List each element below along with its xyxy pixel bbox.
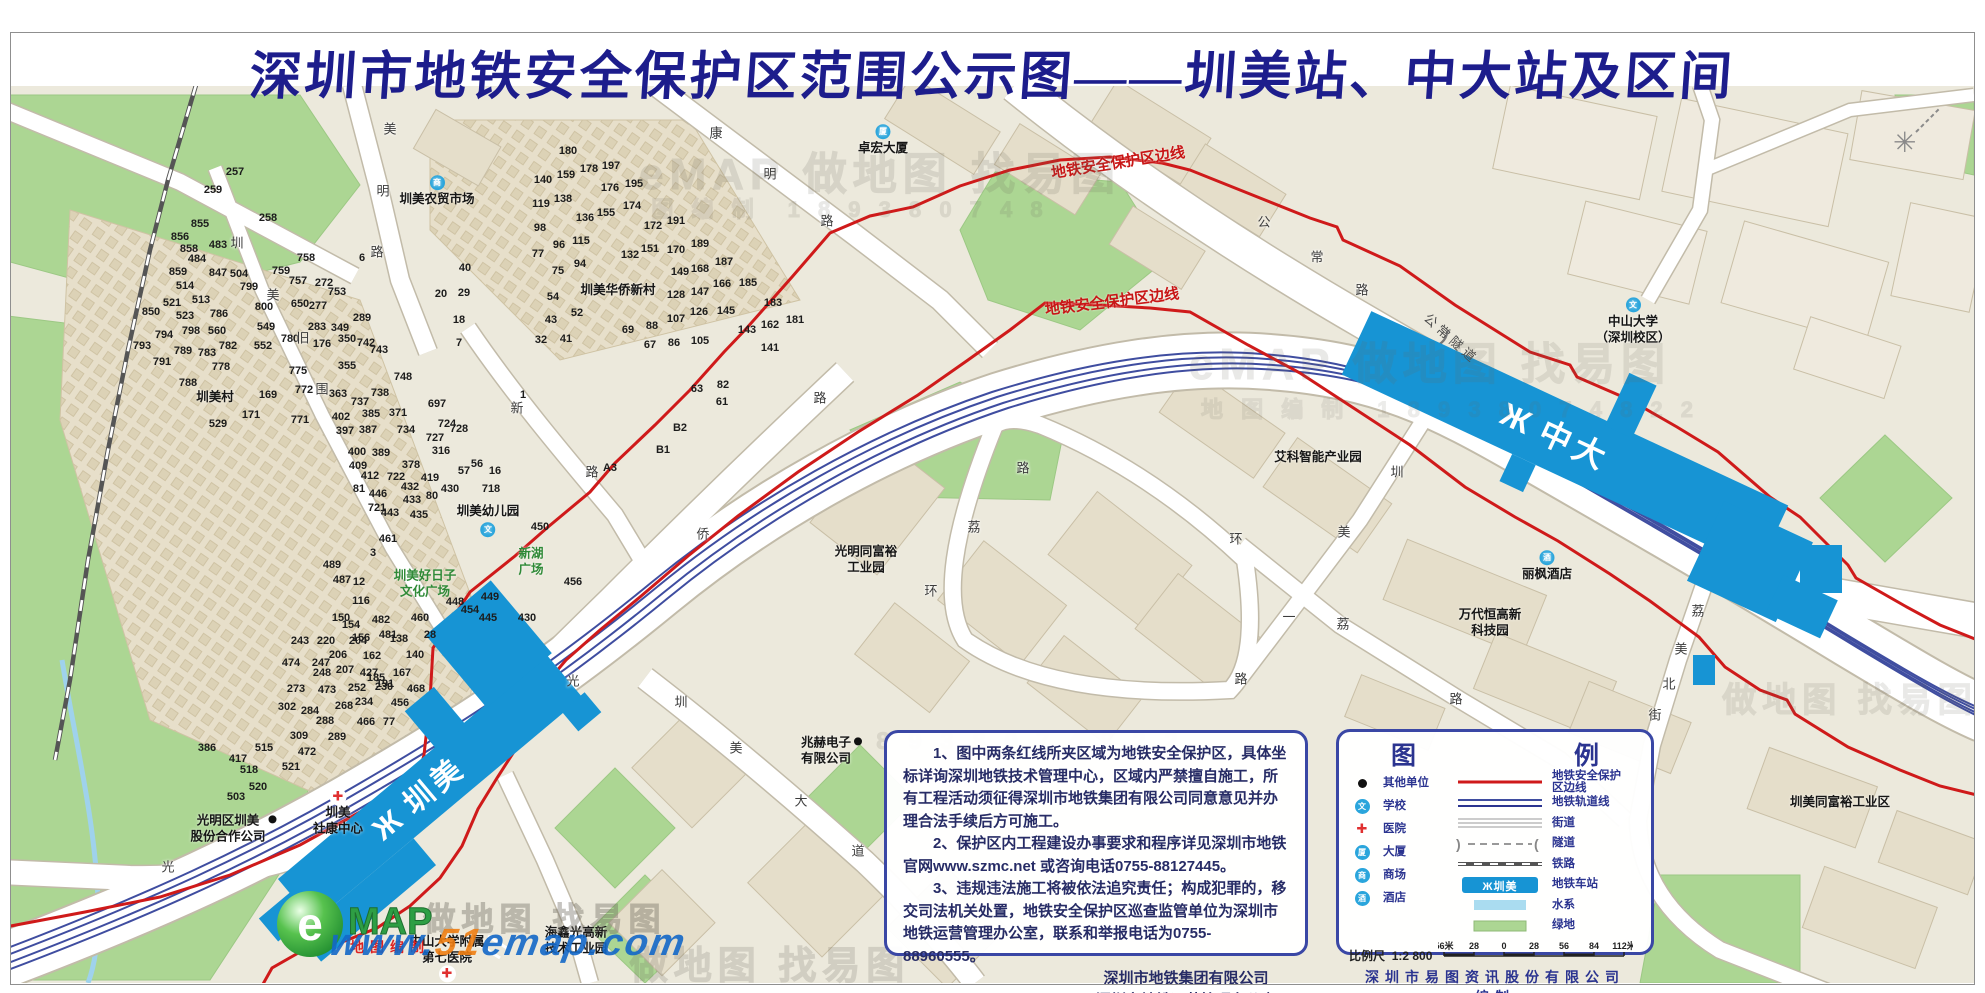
map-frame-border (10, 32, 1975, 985)
poster-page: ) Ж圳美 (0, 0, 1985, 993)
